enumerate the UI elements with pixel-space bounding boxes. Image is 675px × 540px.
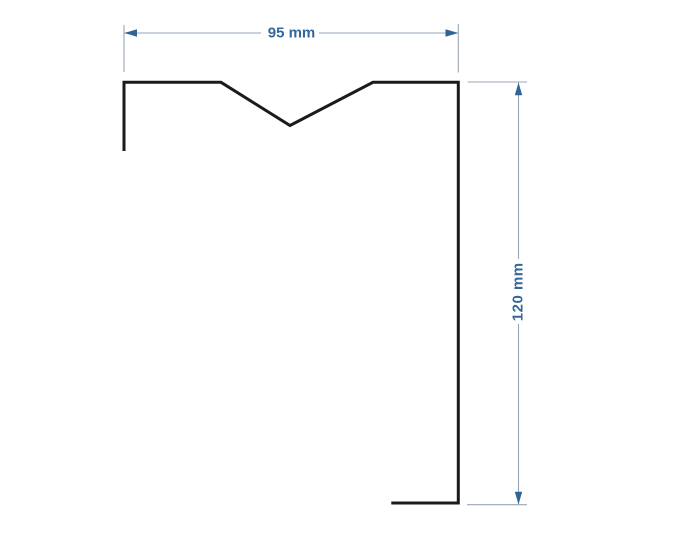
- svg-text:120 mm: 120 mm: [509, 262, 526, 321]
- svg-text:95 mm: 95 mm: [268, 24, 316, 41]
